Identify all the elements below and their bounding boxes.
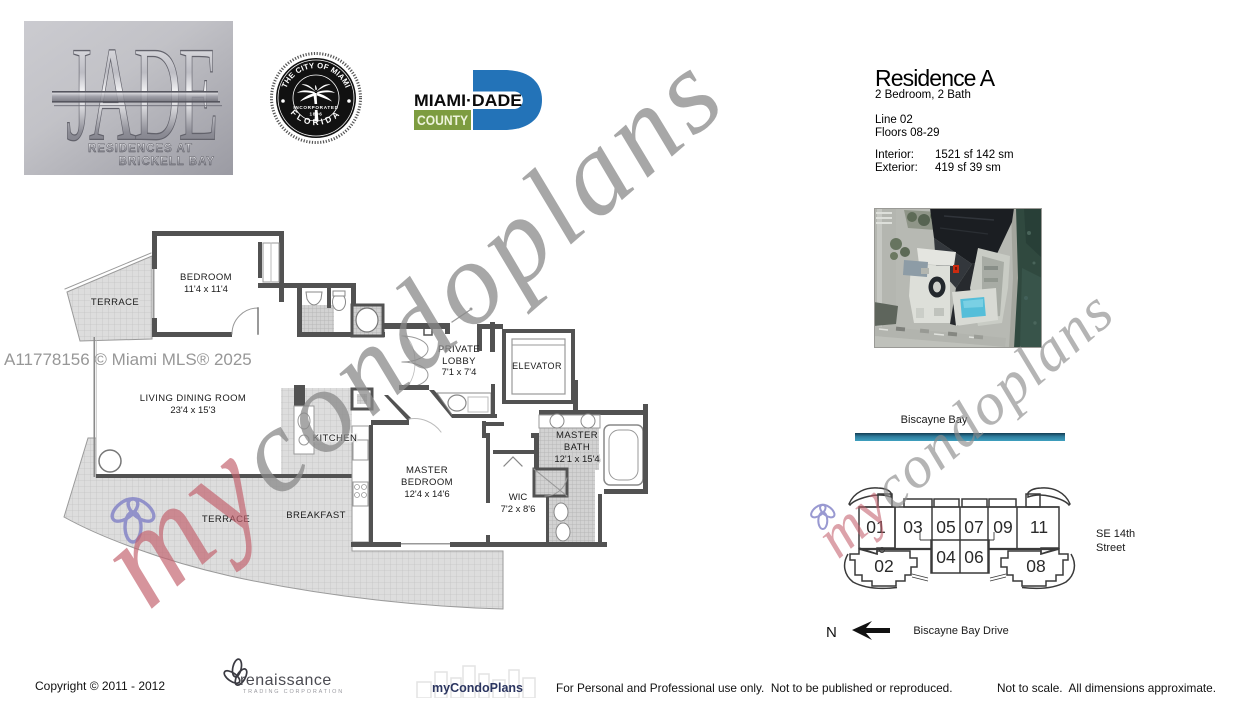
svg-text:11'4 x 11'4: 11'4 x 11'4 [184,284,228,295]
svg-text:ELEVATOR: ELEVATOR [512,361,562,371]
svg-text:MIAMI·DADE: MIAMI·DADE [414,92,522,110]
svg-text:1896: 1896 [309,112,322,117]
svg-text:12'4 x 14'6: 12'4 x 14'6 [404,489,449,500]
svg-text:BEDROOM: BEDROOM [401,477,453,488]
svg-text:07: 07 [964,517,983,537]
svg-text:TERRACE: TERRACE [202,514,250,525]
svg-text:12'1 x 15'4: 12'1 x 15'4 [554,454,599,465]
svg-text:7'2 x 8'6: 7'2 x 8'6 [501,504,536,515]
svg-text:7'1 x 7'4: 7'1 x 7'4 [442,367,477,378]
svg-text:LOBBY: LOBBY [442,356,476,367]
svg-text:SE 14th: SE 14th [1096,528,1135,540]
svg-text:11: 11 [1030,517,1048,537]
svg-text:KITCHEN: KITCHEN [313,433,358,444]
svg-text:COUNTY: COUNTY [417,113,468,128]
svg-text:Street: Street [1096,542,1125,554]
svg-text:MASTER: MASTER [556,430,598,441]
svg-text:N: N [826,624,837,641]
svg-text:04: 04 [936,547,956,567]
svg-text:PRIVATE: PRIVATE [438,344,480,355]
svg-text:09: 09 [993,517,1012,537]
svg-text:BREAKFAST: BREAKFAST [286,510,346,521]
svg-text:23'4 x 15'3: 23'4 x 15'3 [170,405,215,416]
svg-text:BEDROOM: BEDROOM [180,272,232,283]
svg-text:INCORPORATED: INCORPORATED [293,105,338,110]
svg-text:01: 01 [866,517,885,537]
svg-text:LIVING DINING ROOM: LIVING DINING ROOM [140,393,246,404]
svg-text:Biscayne Bay: Biscayne Bay [901,414,968,426]
svg-text:WIC: WIC [509,492,528,503]
svg-text:MASTER: MASTER [406,465,448,476]
svg-text:BATH: BATH [564,442,590,453]
svg-text:03: 03 [903,517,922,537]
svg-text:05: 05 [936,517,955,537]
svg-text:02: 02 [874,556,893,576]
svg-text:08: 08 [1026,556,1045,576]
svg-text:Biscayne Bay Drive: Biscayne Bay Drive [913,625,1008,637]
svg-text:TERRACE: TERRACE [91,297,139,308]
svg-text:06: 06 [964,547,983,567]
